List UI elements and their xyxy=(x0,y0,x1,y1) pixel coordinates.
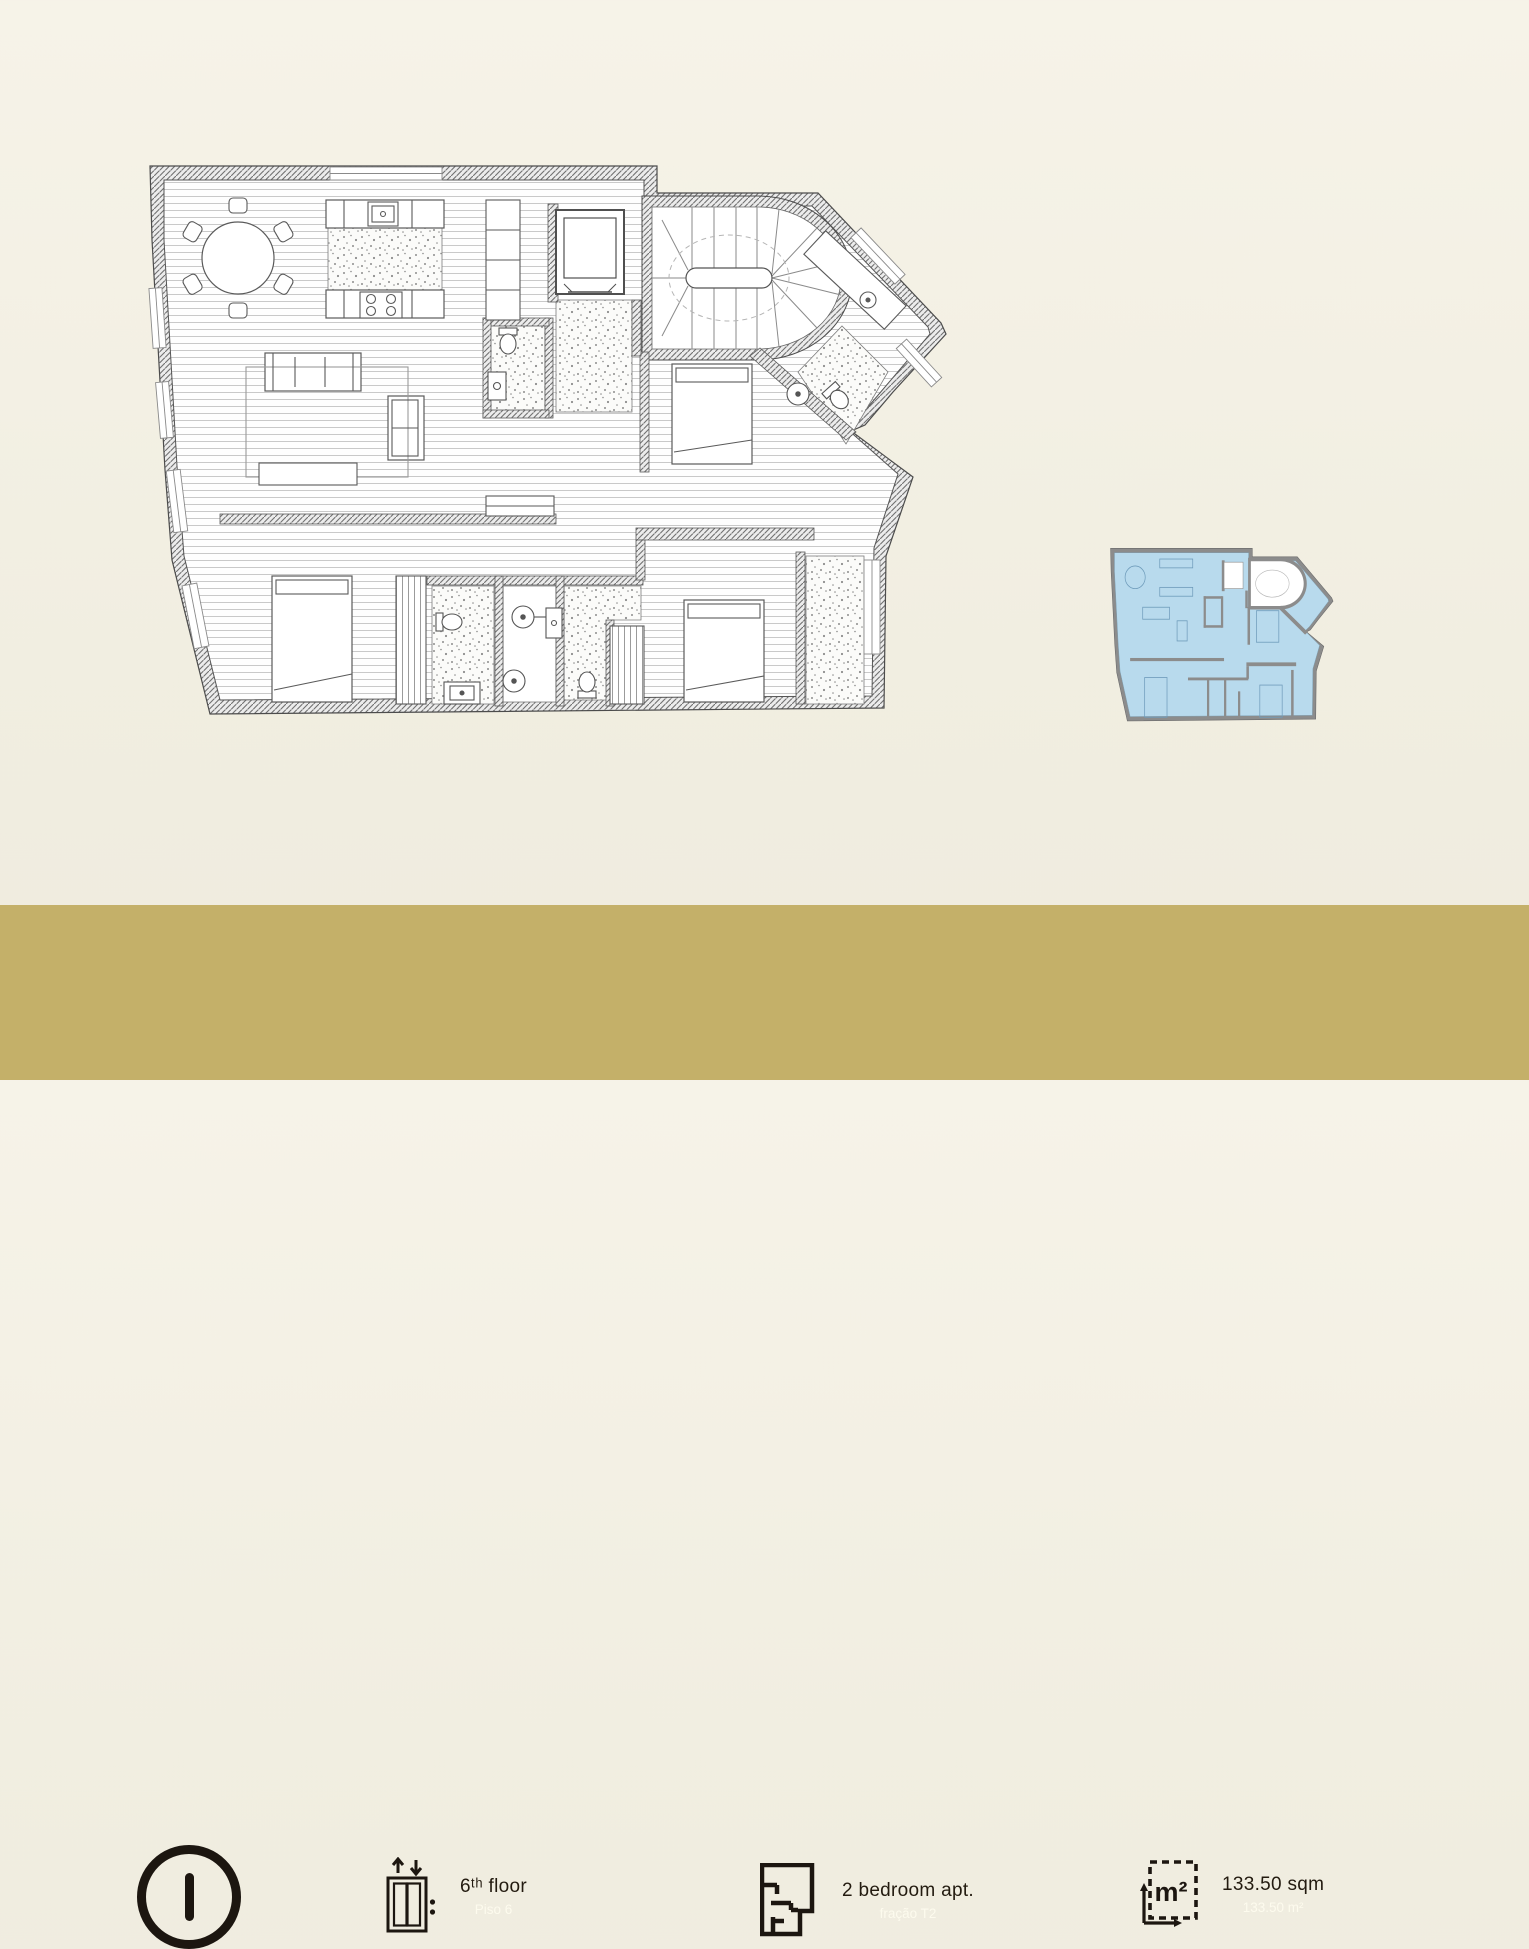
toilet-bath1 xyxy=(436,613,462,631)
kitchen-island-top xyxy=(328,228,442,290)
footer-item-area: m² 133.50 sqm 133.50 m² xyxy=(1138,1857,1324,1931)
elevator-shaft xyxy=(556,210,624,294)
apartment-text: 2 bedroom apt. fração T2 xyxy=(842,1880,974,1921)
marker-letter: I xyxy=(185,1873,194,1921)
elevator-icon xyxy=(386,1857,438,1935)
footer-item-apartment: 2 bedroom apt. fração T2 xyxy=(760,1863,974,1937)
area-sublabel: 133.50 m² xyxy=(1243,1900,1304,1915)
main-floor-plan xyxy=(149,166,946,714)
entry-landing-floor xyxy=(556,300,632,412)
floor-sublabel: Piso 6 xyxy=(475,1902,513,1917)
area-measure-icon: m² xyxy=(1138,1857,1200,1931)
stair-handrail-core xyxy=(686,268,772,288)
area-label: 133.50 sqm xyxy=(1222,1874,1324,1896)
terrace-floor xyxy=(806,556,864,704)
mini-floor-plan xyxy=(1111,548,1333,721)
footer-bar: I 6ᵗʰ floor Piso 6 xyxy=(0,905,1529,1080)
apartment-label: 2 bedroom apt. xyxy=(842,1880,974,1902)
floor-label: 6ᵗʰ floor xyxy=(460,1876,527,1898)
spiral-stair xyxy=(642,196,852,360)
area-text: 133.50 sqm 133.50 m² xyxy=(1222,1874,1324,1915)
m2-glyph: m² xyxy=(1155,1877,1188,1907)
footer-item-floor: 6ᵗʰ floor Piso 6 xyxy=(386,1857,527,1935)
toilet-bath2 xyxy=(578,672,596,698)
apartment-sublabel: fração T2 xyxy=(880,1906,937,1921)
toilet-wc xyxy=(499,328,517,354)
letter-i-circle-icon: I xyxy=(137,1845,241,1949)
floorplan-icon xyxy=(760,1863,816,1937)
floor-text: 6ᵗʰ floor Piso 6 xyxy=(460,1876,527,1917)
